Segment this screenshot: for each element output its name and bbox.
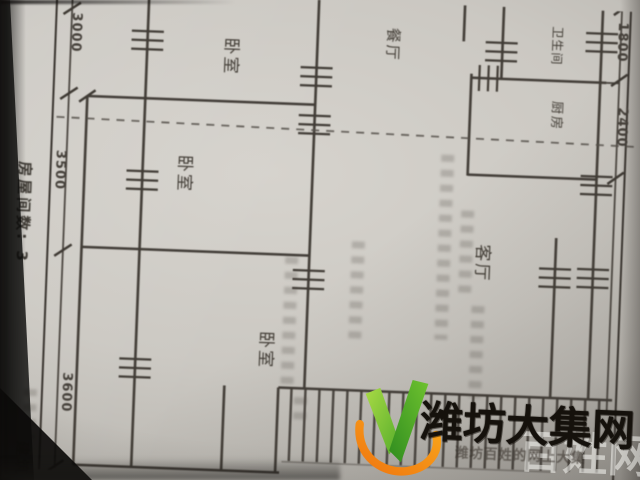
form-building-label: 建筑 xyxy=(11,440,33,477)
room-label-bathroom: 卫生间 xyxy=(548,26,566,66)
room-label-living: 客厅 xyxy=(471,244,497,283)
dim-right-1800: 1800 xyxy=(614,22,631,63)
room-label-bedroom-top: 卧室 xyxy=(220,37,246,76)
room-label-dining: 餐厅 xyxy=(382,27,404,62)
dim-right-2400: 2400 xyxy=(613,107,630,148)
dim-left-3500: 3500 xyxy=(51,150,68,191)
handwriting-scribbles xyxy=(22,389,37,439)
room-label-kitchen: 厨房 xyxy=(548,101,568,132)
room-label-bedroom-middle: 卧室 xyxy=(173,154,199,193)
floor-plan-drawing: 卧室 卧室 卧室 餐厅 卫生间 厨房 客厅 3000 3500 3600 180… xyxy=(0,0,640,480)
floor-plan-photo: 卧室 卧室 卧室 餐厅 卫生间 厨房 客厅 3000 3500 3600 180… xyxy=(0,0,640,480)
handwriting-scribbles xyxy=(293,397,307,423)
dim-left-3000: 3000 xyxy=(68,12,85,53)
window-symbols xyxy=(119,16,618,395)
dim-left-3600: 3600 xyxy=(58,372,75,413)
form-rooms-count-label: 房屋间数: 3 xyxy=(11,161,36,264)
room-label-bedroom-bottom: 卧室 xyxy=(255,331,281,370)
balcony-railing-hatch xyxy=(287,389,606,473)
